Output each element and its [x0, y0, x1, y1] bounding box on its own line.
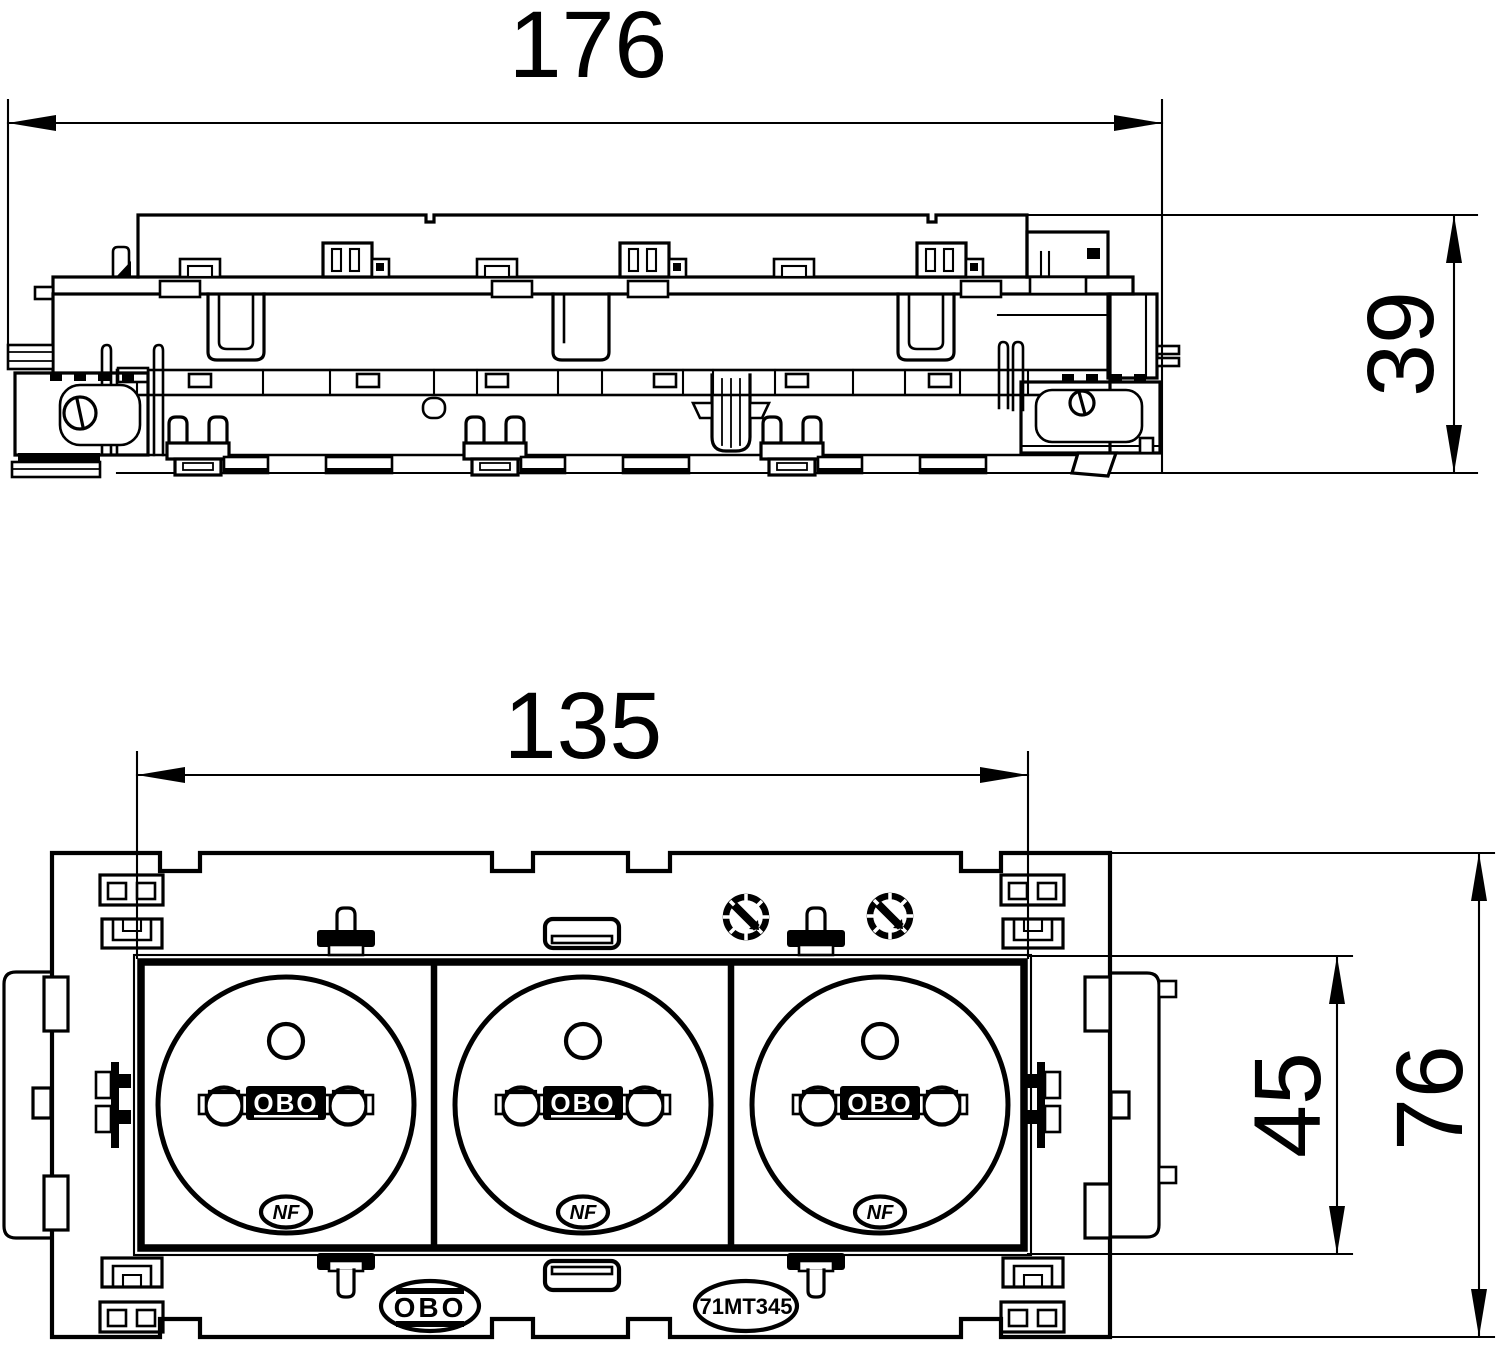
lid-outline: [138, 215, 1027, 277]
dim-45-label: 45: [1235, 1052, 1341, 1158]
dim-45: 45: [1028, 956, 1352, 1254]
socket-module: OBO NF: [455, 977, 711, 1233]
knurled-screw-icon: [723, 894, 769, 940]
left-bracket: [8, 345, 148, 477]
obo-logo-text: OBO: [847, 1088, 912, 1118]
toggle-clip-top: [317, 908, 375, 955]
side-view: [8, 215, 1179, 477]
socket-module: OBO NF: [752, 977, 1008, 1233]
side-latch-left: [96, 1062, 131, 1148]
left-connector: [4, 972, 68, 1238]
technical-drawing-page: OBO NF OBO NF OBO NF: [0, 0, 1500, 1358]
socket-pin-hole-right: [323, 1088, 373, 1125]
toggle-clip-bottom: [317, 1253, 375, 1297]
centre-pillar: [693, 375, 769, 451]
toggle-clip-bottom: [787, 1253, 845, 1297]
socket-pin-hole-left: [199, 1088, 249, 1125]
u-channels: [208, 294, 954, 360]
dim-39-label: 39: [1348, 291, 1454, 397]
front-view: OBO NF OBO NF OBO NF: [4, 853, 1176, 1337]
slide-clip-top: [545, 919, 619, 948]
right-connector: [1085, 973, 1176, 1238]
dim-176-label: 176: [509, 0, 668, 98]
drawing-canvas: OBO NF OBO NF OBO NF: [0, 0, 1500, 1358]
obo-logo-text: OBO: [253, 1088, 318, 1118]
nf-mark-text: NF: [570, 1202, 597, 1224]
feet: [167, 417, 986, 475]
part-number-stamp: 71MT345: [695, 1281, 797, 1331]
dim-76-label: 76: [1377, 1045, 1483, 1151]
dimension-annotations: 176 39 135 45: [8, 0, 1494, 1337]
left-ledge: [35, 287, 53, 299]
dim-135-label: 135: [504, 673, 663, 779]
obo-logo-text: OBO: [550, 1088, 615, 1118]
latch-blocks: [323, 243, 983, 277]
top-clips: [180, 259, 814, 277]
dim-176: 176: [8, 0, 1162, 473]
brand-oval-logo: OBO: [381, 1281, 479, 1331]
socket-module: OBO NF: [158, 977, 414, 1233]
knurled-screw-icon: [867, 893, 913, 939]
toggle-clip-top: [787, 908, 845, 955]
brand-logo-text: OBO: [394, 1292, 467, 1323]
wide-feet: [326, 457, 986, 473]
right-bracket: [999, 294, 1179, 476]
slide-clip-bottom: [545, 1261, 619, 1290]
part-number-text: 71MT345: [700, 1294, 793, 1319]
rail-band: [117, 370, 1110, 395]
nf-mark-text: NF: [867, 1202, 894, 1224]
socket-earth-pin-hole: [269, 1024, 303, 1058]
nf-mark-text: NF: [273, 1202, 300, 1224]
